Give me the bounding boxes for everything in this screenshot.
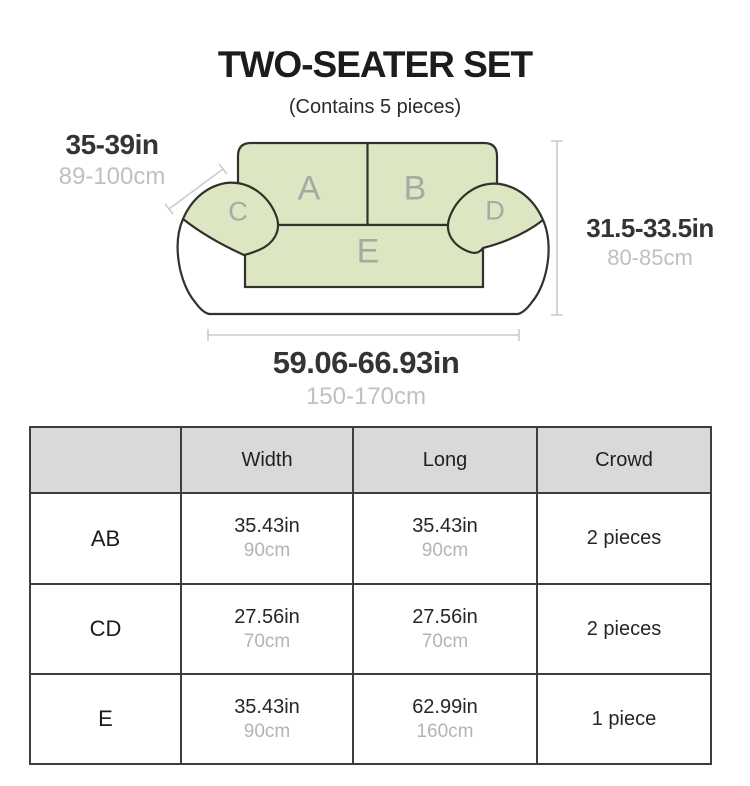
table-row-ab: AB 35.43in 90cm 35.43in 90cm 2 pieces xyxy=(30,493,711,584)
zone-label-b: B xyxy=(404,170,427,209)
ab-long-cm: 90cm xyxy=(354,540,536,563)
header-cell-blank xyxy=(30,427,181,493)
e-crowd: 1 piece xyxy=(538,708,710,731)
size-table: Width Long Crowd AB 35.43in 90cm 35.43in… xyxy=(29,426,712,765)
cd-width-cm: 70cm xyxy=(182,631,352,654)
size-table-header-row: Width Long Crowd xyxy=(30,427,711,493)
back-width-inches: 35-39in xyxy=(12,130,212,161)
row-label-cd: CD xyxy=(31,616,180,642)
cd-width-in: 27.56in xyxy=(182,605,352,629)
ab-width-cm: 90cm xyxy=(182,540,352,563)
zone-label-d: D xyxy=(485,196,505,227)
sofa-diagram: A B C D E 35-39in 89-100cm 31.5-33.5in 8… xyxy=(0,0,750,420)
height-cm: 80-85cm xyxy=(550,246,750,270)
size-guide-infographic: TWO-SEATER SET (Contains 5 pieces) xyxy=(0,0,750,786)
table-row-cd: CD 27.56in 70cm 27.56in 70cm 2 pieces xyxy=(30,584,711,674)
zone-label-a: A xyxy=(298,170,321,209)
header-cell-long: Long xyxy=(353,427,537,493)
height-inches: 31.5-33.5in xyxy=(550,214,750,243)
e-width-cm: 90cm xyxy=(182,721,352,744)
header-cell-crowd: Crowd xyxy=(537,427,711,493)
e-width-in: 35.43in xyxy=(182,695,352,719)
length-measurement: 59.06-66.93in 150-170cm xyxy=(216,346,516,410)
table-row-e: E 35.43in 90cm 62.99in 160cm 1 piece xyxy=(30,674,711,764)
length-measure-line xyxy=(208,329,519,341)
header-cell-width: Width xyxy=(181,427,353,493)
ab-long-in: 35.43in xyxy=(354,514,536,538)
length-cm: 150-170cm xyxy=(216,384,516,410)
zone-label-e: E xyxy=(357,233,380,272)
cd-crowd: 2 pieces xyxy=(538,618,710,641)
ab-crowd: 2 pieces xyxy=(538,527,710,550)
row-label-ab: AB xyxy=(31,526,180,552)
back-width-cm: 89-100cm xyxy=(12,164,212,190)
cd-long-in: 27.56in xyxy=(354,605,536,629)
e-long-in: 62.99in xyxy=(354,695,536,719)
row-label-e: E xyxy=(31,706,180,732)
length-inches: 59.06-66.93in xyxy=(216,346,516,380)
back-width-measurement: 35-39in 89-100cm xyxy=(12,130,212,190)
ab-width-in: 35.43in xyxy=(182,514,352,538)
e-long-cm: 160cm xyxy=(354,721,536,744)
cd-long-cm: 70cm xyxy=(354,631,536,654)
zone-label-c: C xyxy=(228,197,248,228)
height-measurement: 31.5-33.5in 80-85cm xyxy=(550,214,750,270)
